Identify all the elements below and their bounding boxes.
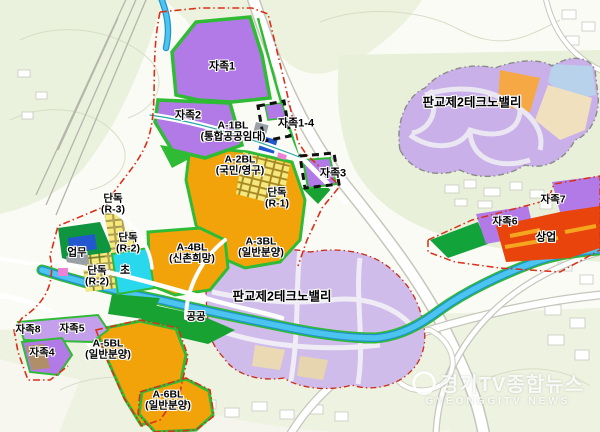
map-canvas [0, 0, 600, 432]
planning-map: 자족1자족2A-1BL(통합공공임대)자족1-4A-2BL(국민/영구)자족3단… [0, 0, 600, 432]
technovalley-bottom-tan-block2 [297, 356, 328, 380]
jajok1-4-block [265, 103, 286, 120]
jajok7-block [552, 176, 600, 212]
